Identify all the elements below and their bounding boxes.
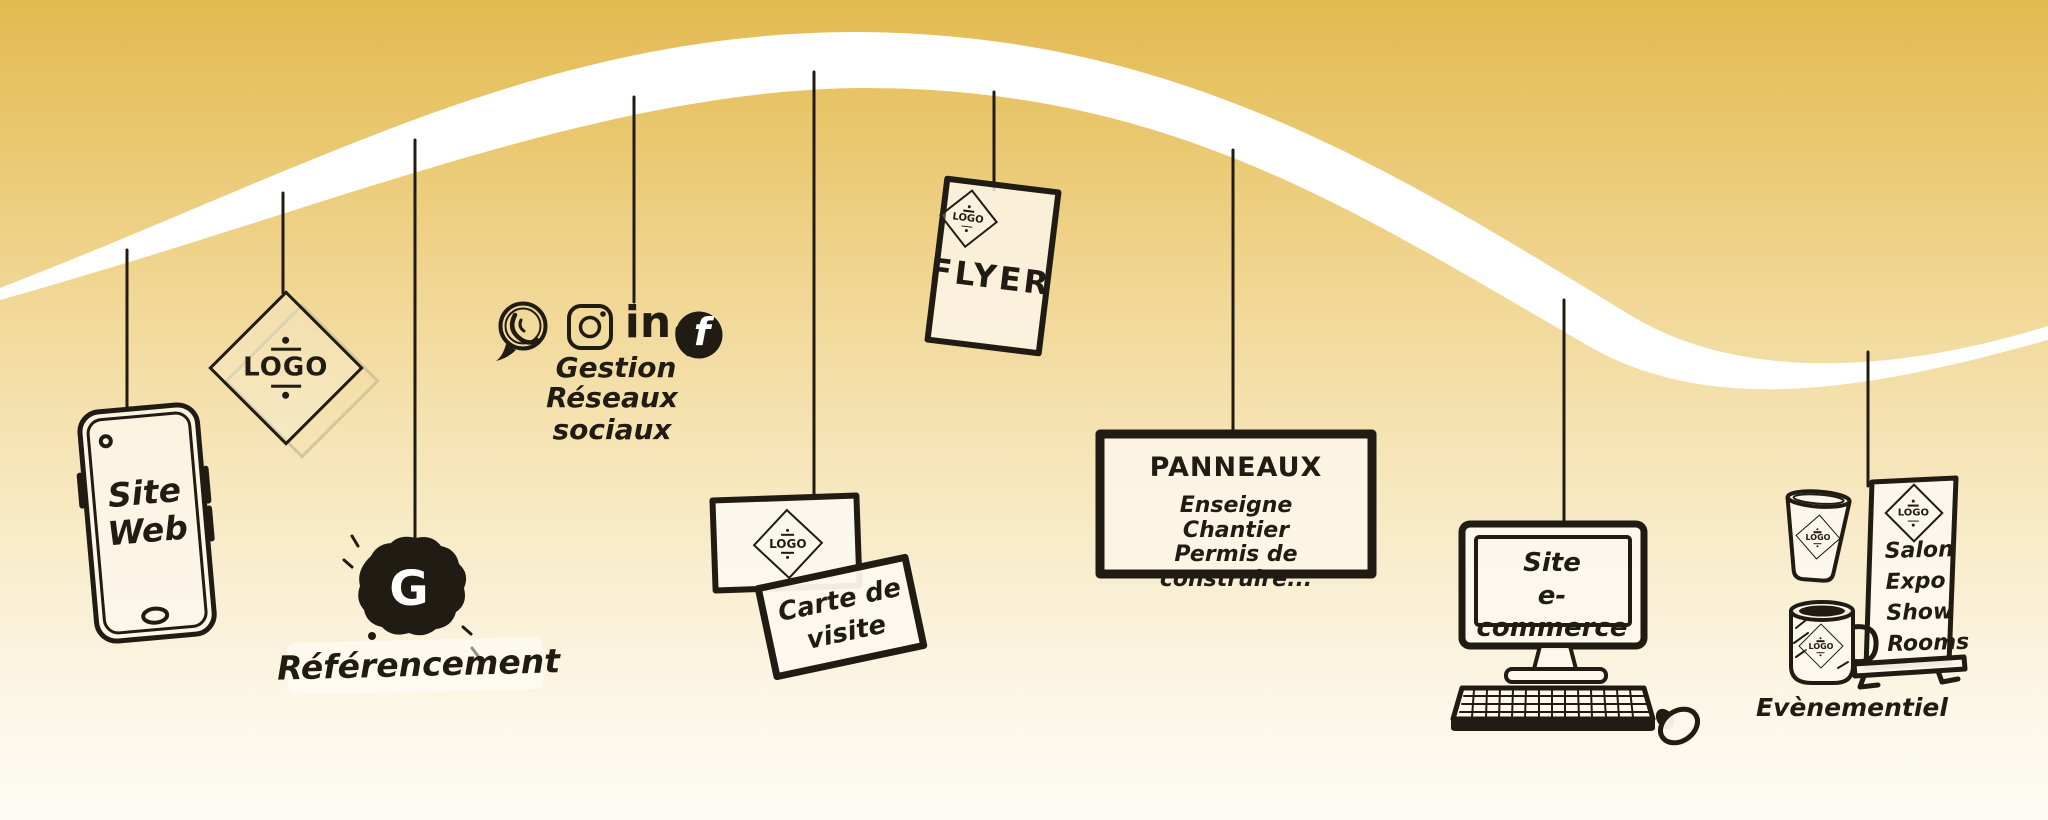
panneaux-line-permis: Permis de construire... <box>1106 542 1366 593</box>
evenementiel-label: Evènementiel <box>1756 694 1922 723</box>
site-web-label: Site Web <box>87 469 205 554</box>
whatsapp-handset-curl <box>520 320 524 331</box>
gestion-label: Gestion <box>536 352 696 384</box>
cup-logo-label: LOGO <box>1806 533 1831 541</box>
blot-droplet <box>368 632 376 640</box>
banner-line-show: Show <box>1886 599 1963 632</box>
instagram-flash-dot <box>600 311 606 317</box>
card-logo-label: LOGO <box>769 538 806 550</box>
flyer-content: LOGO FLYER <box>928 179 1059 353</box>
reseaux-sociaux-label: Réseaux sociaux <box>486 382 738 446</box>
banner-line-salon: Salon <box>1884 537 1961 570</box>
banner-logo-label: LOGO <box>1898 508 1929 518</box>
phone-side-button <box>209 509 212 539</box>
panneaux-line-enseigne: Enseigne <box>1106 493 1366 518</box>
mug-logo-label: LOGO <box>1809 642 1834 650</box>
instagram-icon <box>569 306 611 348</box>
logo-tag-line <box>271 348 301 351</box>
facebook-f-glyph: f <box>687 311 717 355</box>
whatsapp-handset <box>512 315 537 342</box>
linkedin-icon: in <box>620 298 676 349</box>
referencement-label: Référencement <box>277 642 554 687</box>
monitor-neck <box>1534 646 1576 669</box>
blot-tick <box>344 560 352 567</box>
logo-tag-dot <box>283 392 290 399</box>
mouse-icon <box>1652 702 1704 750</box>
logo-tag-dot <box>283 337 290 344</box>
blot-tick <box>352 536 358 546</box>
ecommerce-label: Site e-commerce <box>1472 547 1632 645</box>
mug-coffee <box>1799 606 1845 617</box>
instagram-lens <box>581 318 600 337</box>
google-g-label: G <box>383 556 435 622</box>
flyer-logo-diamond: LOGO <box>939 189 998 248</box>
logo-tag-line <box>271 385 301 388</box>
banner-line-expo: Expo <box>1885 568 1962 601</box>
blot-tick <box>463 627 471 634</box>
panneaux-line-chantier: Chantier <box>1106 518 1366 543</box>
monitor-base <box>1506 669 1606 682</box>
flyer-logo-label: LOGO <box>952 212 984 226</box>
phone-side-button <box>80 476 83 506</box>
banner-line-rooms: Rooms <box>1887 630 1964 663</box>
panneaux-title: PANNEAUX <box>1116 452 1356 483</box>
banner-text-lines: Salon Expo Show Rooms <box>1884 537 1963 663</box>
banner-foot <box>1860 676 1878 687</box>
keyboard-base <box>1451 719 1655 731</box>
illustration-canvas: Site Web LOGO G Référencement in f Gesti… <box>0 0 2048 820</box>
phone-side-button <box>206 469 209 501</box>
logo-tag-label: LOGO <box>243 355 328 381</box>
banner-foot <box>1938 671 1958 682</box>
flyer-label: FLYER <box>928 251 1050 302</box>
keyboard <box>1451 688 1655 731</box>
